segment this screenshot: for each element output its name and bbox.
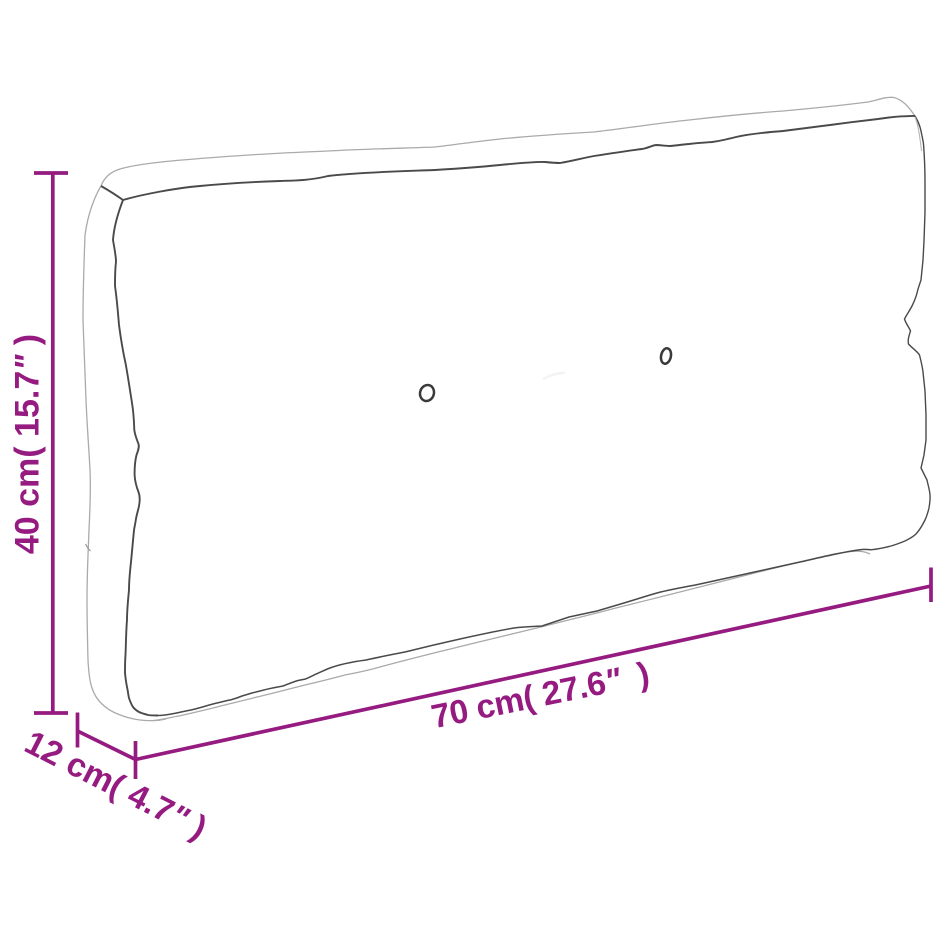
svg-text:40 cm( 15.7" ): 40 cm( 15.7" ) [8,334,46,554]
